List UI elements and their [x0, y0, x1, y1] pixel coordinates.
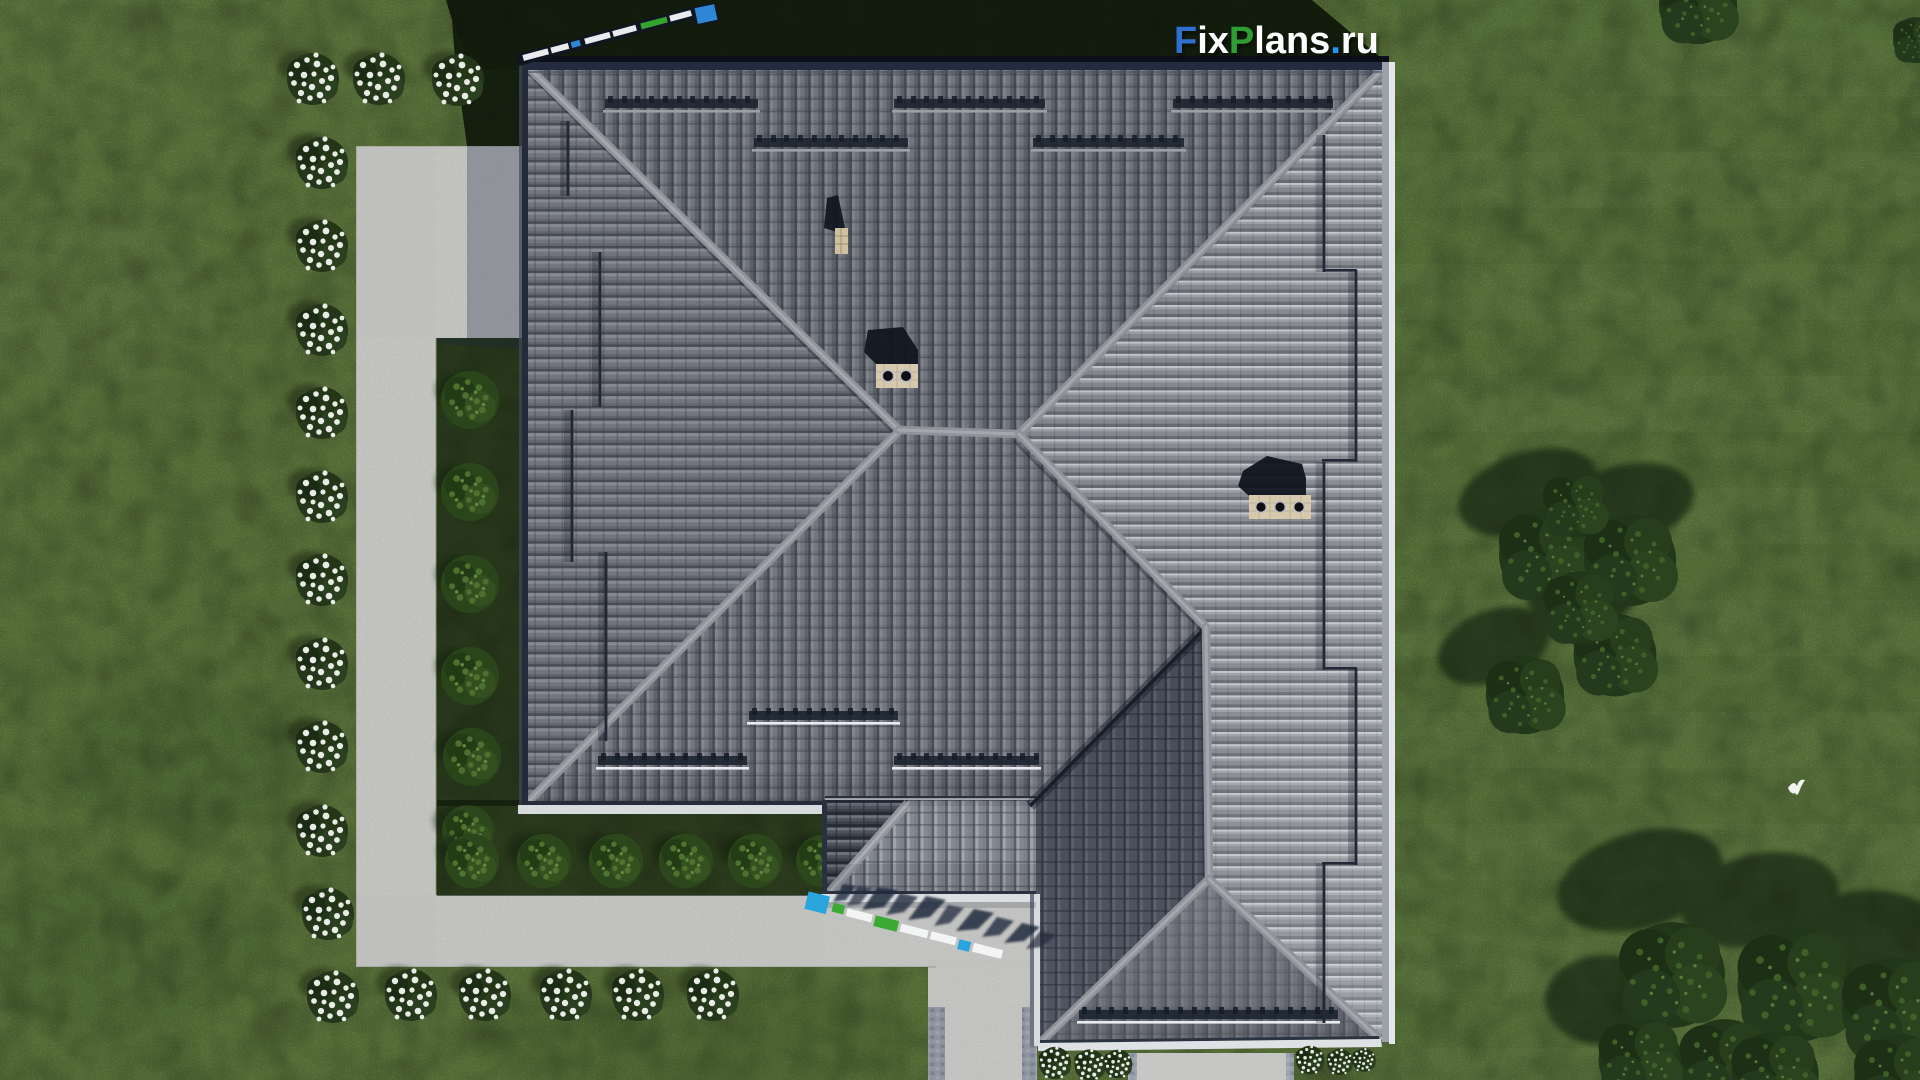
svg-text:FixPlans.ru: FixPlans.ru	[1174, 20, 1379, 62]
